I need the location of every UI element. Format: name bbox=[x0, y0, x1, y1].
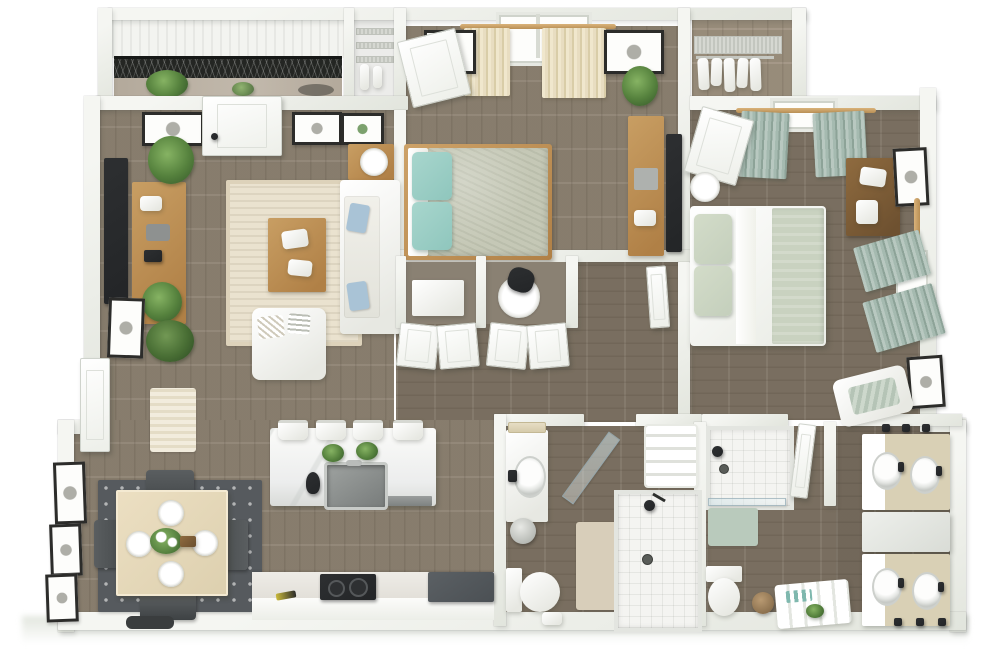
bedroom2-wall-art-top bbox=[893, 147, 930, 207]
closet-rod bbox=[696, 56, 774, 59]
sink-faucet bbox=[346, 460, 362, 466]
living-left-wall-art bbox=[107, 297, 145, 358]
bar-stool bbox=[278, 420, 308, 440]
bathroom1-sink bbox=[514, 456, 546, 498]
closet-bifold-door bbox=[436, 322, 480, 369]
wall-oven bbox=[428, 572, 494, 602]
towel-hook bbox=[902, 424, 910, 432]
bed2-sage-coverlet bbox=[772, 208, 824, 344]
step-stool bbox=[542, 612, 562, 625]
shower-head bbox=[644, 500, 655, 511]
exterior-wall-top bbox=[108, 8, 806, 20]
towel-hook bbox=[894, 618, 902, 626]
laundry-wire-shelf bbox=[356, 56, 394, 63]
apartment-entry-door bbox=[80, 358, 110, 452]
towel-hook bbox=[882, 424, 890, 432]
dresser-folded-items bbox=[634, 168, 658, 190]
bathroom1-towel-bar bbox=[508, 422, 546, 433]
living-plant-low bbox=[142, 282, 182, 322]
bathrooms-north-wall-c bbox=[702, 414, 788, 426]
floor-plan-3d-render bbox=[0, 0, 1000, 649]
laundry-wire-shelf bbox=[356, 28, 394, 35]
hanging-clothes bbox=[711, 58, 723, 86]
dresser2-radio bbox=[856, 200, 878, 224]
living-plant-tall bbox=[148, 136, 194, 184]
bathroom2-shower-glass bbox=[708, 498, 786, 506]
laundry-hanging-item bbox=[360, 64, 369, 90]
balcony-door bbox=[202, 96, 282, 156]
closet-bifold-door bbox=[526, 322, 570, 369]
cooktop-burner bbox=[328, 580, 345, 597]
balcony-left-wall bbox=[98, 8, 112, 108]
bathroom1-towel-basket bbox=[510, 518, 536, 544]
cooktop-burner bbox=[349, 578, 368, 597]
dresser-decor bbox=[634, 210, 656, 226]
bed1-pillow-teal bbox=[412, 202, 452, 250]
balcony-laundry-divider bbox=[344, 8, 354, 100]
cart-plant bbox=[806, 604, 824, 618]
closet-box-east-wall bbox=[566, 256, 578, 328]
bathroom2-vanity-wall bbox=[824, 422, 836, 506]
dining-gallery-frame bbox=[45, 573, 79, 622]
bed2-pillow-sage bbox=[694, 266, 732, 316]
sofa-pillow-blue bbox=[346, 281, 370, 312]
living-plant-spiky bbox=[146, 320, 194, 362]
coffee-table-books bbox=[281, 228, 309, 249]
closet-wire-shelf bbox=[694, 36, 782, 54]
bed2-duvet-fold bbox=[736, 208, 756, 344]
bedroom1-plant bbox=[622, 66, 658, 106]
vanity-faucet bbox=[898, 578, 904, 588]
kitchen-bathroom1-wall bbox=[494, 414, 506, 626]
bathroom1-faucet bbox=[508, 470, 517, 482]
bedroom1-window-mullions bbox=[536, 14, 540, 58]
black-gooseneck-faucet bbox=[306, 472, 320, 494]
balcony-furniture-shadow bbox=[298, 84, 334, 96]
bedroom1-curtain-right bbox=[542, 28, 606, 98]
towel-hook bbox=[916, 618, 924, 626]
armchair-pillow bbox=[287, 313, 311, 335]
hanging-clothes bbox=[736, 58, 749, 89]
closet-box-mid-wall bbox=[476, 256, 486, 328]
balcony-wall-face bbox=[112, 20, 344, 58]
shower-head bbox=[712, 446, 723, 457]
cart-towels bbox=[786, 589, 813, 603]
closet-bifold-door bbox=[396, 322, 440, 370]
bar-stool bbox=[316, 420, 346, 440]
wicker-basket bbox=[752, 592, 774, 614]
dresser2-decor bbox=[859, 166, 887, 187]
bathrooms-north-wall-b bbox=[636, 414, 702, 426]
balcony-plant bbox=[146, 70, 188, 98]
towel-hook bbox=[938, 618, 946, 626]
centerpiece-box bbox=[180, 536, 196, 547]
dining-gallery-frame bbox=[53, 461, 87, 524]
bar-stool bbox=[353, 420, 383, 440]
living-wall-art-plant-print bbox=[341, 113, 384, 145]
island-plant bbox=[322, 444, 344, 462]
dining-gallery-frame bbox=[49, 523, 83, 576]
island-sink bbox=[324, 462, 388, 510]
console-books bbox=[140, 196, 162, 211]
bed2-pillow-sage bbox=[694, 214, 732, 264]
linen-shelves bbox=[646, 426, 696, 486]
bathroom1-shower bbox=[614, 490, 702, 632]
bar-stool bbox=[393, 420, 423, 440]
bed1-pillow-teal bbox=[412, 152, 452, 200]
nook-built-in-desk bbox=[412, 280, 464, 316]
hall-bedroom2-wall bbox=[678, 262, 690, 422]
place-setting-plate bbox=[158, 561, 184, 587]
shower-drain bbox=[719, 464, 729, 474]
console-decor bbox=[144, 250, 162, 262]
shower-drain bbox=[642, 554, 653, 565]
bathroom2-bath-mat bbox=[708, 508, 758, 546]
console-baskets bbox=[146, 224, 170, 241]
entry-door-mat bbox=[150, 388, 196, 452]
chair-shadow bbox=[126, 616, 174, 629]
laundry-wire-shelf bbox=[356, 42, 394, 49]
towel-hook bbox=[922, 424, 930, 432]
bedroom1-tv bbox=[666, 134, 682, 252]
vanity-faucet bbox=[898, 462, 904, 472]
place-setting-plate bbox=[126, 531, 152, 557]
coffee-table-books bbox=[287, 259, 313, 277]
dining-centerpiece bbox=[150, 528, 182, 554]
laundry-hanging-item bbox=[373, 66, 382, 88]
toilet-bowl bbox=[708, 578, 740, 616]
living-wall-art-a bbox=[292, 112, 342, 145]
balcony-plant-small bbox=[232, 82, 254, 96]
closet-bifold-door bbox=[486, 322, 530, 370]
armchair-pillow bbox=[257, 315, 285, 340]
bedroom2-side-table bbox=[690, 172, 720, 202]
toilet-bowl bbox=[520, 572, 560, 612]
vanity-faucet bbox=[936, 466, 942, 476]
vanity-storage-cabinet bbox=[862, 512, 950, 552]
hallway-door bbox=[646, 265, 670, 328]
closet-right-wall bbox=[792, 8, 806, 102]
table-lamp bbox=[360, 148, 388, 176]
place-setting-plate bbox=[158, 500, 184, 526]
door-handle bbox=[211, 133, 218, 140]
living-tv bbox=[104, 158, 128, 304]
hanging-clothes bbox=[723, 58, 735, 92]
closet-box-west-wall bbox=[396, 256, 406, 328]
exterior-wall-right-lower bbox=[950, 420, 966, 632]
island-plant bbox=[356, 442, 378, 460]
hanging-clothes bbox=[697, 58, 710, 91]
hanging-clothes bbox=[749, 58, 761, 91]
vanity-faucet bbox=[938, 582, 944, 592]
